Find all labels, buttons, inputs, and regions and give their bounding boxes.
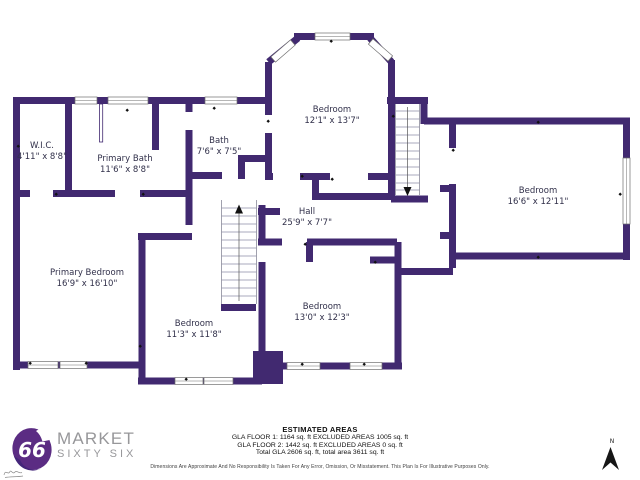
room-name: W.I.C. [17, 141, 67, 152]
room-label-bedroom-top: Bedroom 12'1" x 13'7" [304, 105, 359, 127]
gla-floor-2: GLA FLOOR 2: 1442 sq. ft EXCLUDED AREAS … [0, 442, 640, 450]
room-label-hall: Hall 25'9" x 7'7" [282, 207, 332, 229]
room-label-bath: Bath 7'6" x 7'5" [197, 136, 242, 158]
room-label-primary-bedroom: Primary Bedroom 16'9" x 16'10" [50, 268, 124, 290]
room-dims: 11'6" x 8'8" [97, 165, 152, 176]
compass: N [597, 438, 627, 476]
staircase-up [222, 200, 257, 304]
room-name: Primary Bedroom [50, 268, 124, 279]
room-label-primary-bath: Primary Bath 11'6" x 8'8" [97, 154, 152, 176]
room-name: Bedroom [508, 186, 569, 197]
room-label-bedroom-mid: Bedroom 11'3" x 11'8" [166, 319, 221, 341]
room-name: Bedroom [166, 319, 221, 330]
room-dims: 13'0" x 12'3" [294, 313, 349, 324]
room-name: Bedroom [304, 105, 359, 116]
disclaimer-text: Dimensions Are Approximate And No Respon… [0, 464, 640, 470]
signature-watermark [2, 467, 36, 479]
floorplan-page: W.I.C. 4'11" x 8'8" Primary Bath 11'6" x… [0, 0, 640, 480]
gla-floor-1: GLA FLOOR 1: 1164 sq. ft EXCLUDED AREAS … [0, 434, 640, 442]
compass-n-label: N [597, 438, 627, 445]
room-dims: 11'3" x 11'8" [166, 330, 221, 341]
room-label-wic: W.I.C. 4'11" x 8'8" [17, 141, 67, 163]
staircase-down [396, 104, 420, 196]
room-dims: 7'6" x 7'5" [197, 147, 242, 158]
north-arrow-icon [597, 445, 627, 473]
room-name: Hall [282, 207, 332, 218]
floorplan-graphic [0, 0, 640, 480]
estimated-areas-block: ESTIMATED AREAS GLA FLOOR 1: 1164 sq. ft… [0, 425, 640, 457]
room-label-bedroom-bottom: Bedroom 13'0" x 12'3" [294, 302, 349, 324]
room-dims: 12'1" x 13'7" [304, 116, 359, 127]
gla-total: Total GLA 2606 sq. ft, total area 3611 s… [0, 449, 640, 457]
room-dims: 16'6" x 12'11" [508, 197, 569, 208]
room-dims: 25'9" x 7'7" [282, 218, 332, 229]
room-dims: 16'9" x 16'10" [50, 279, 124, 290]
room-dims: 4'11" x 8'8" [17, 152, 67, 163]
room-name: Bath [197, 136, 242, 147]
room-name: Bedroom [294, 302, 349, 313]
door-leaf [100, 104, 103, 142]
room-name: Primary Bath [97, 154, 152, 165]
estimated-areas-title: ESTIMATED AREAS [0, 425, 640, 434]
room-label-bedroom-right: Bedroom 16'6" x 12'11" [508, 186, 569, 208]
